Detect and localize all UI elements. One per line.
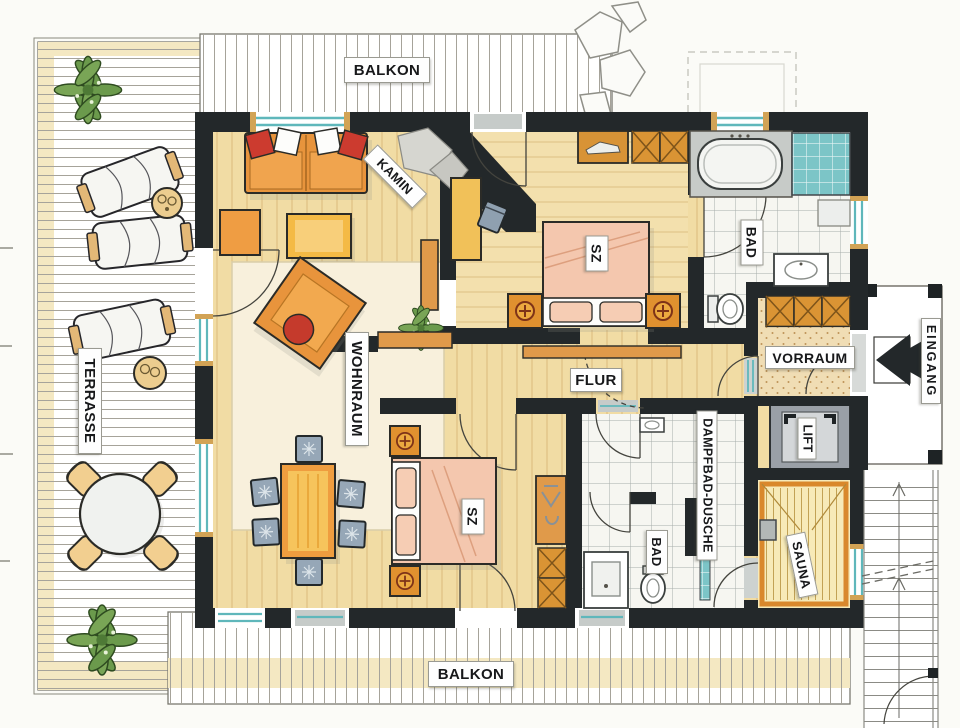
room-label-wohnraum: WOHNRAUM xyxy=(345,332,369,446)
terrace-side-table xyxy=(134,357,166,389)
terrace-area xyxy=(34,38,209,694)
pillow xyxy=(600,302,642,322)
vanity-lower xyxy=(584,552,628,608)
pillow xyxy=(314,128,341,155)
lamp-icon xyxy=(654,302,672,320)
room-label-terrasse: TERRASSE xyxy=(78,348,102,454)
pillow xyxy=(396,468,416,508)
washbasin-upper xyxy=(774,254,828,286)
lamp-icon xyxy=(516,302,534,320)
sauna-heater xyxy=(760,520,776,540)
lamp-icon xyxy=(397,573,413,589)
toilet-upper xyxy=(708,294,743,324)
pillow xyxy=(274,128,301,155)
pillow xyxy=(550,302,592,322)
lounge-chair xyxy=(86,214,194,271)
flur-sideboard xyxy=(523,346,681,358)
shower xyxy=(792,133,850,195)
terrace-door-living xyxy=(195,248,213,314)
small-sink xyxy=(640,418,664,432)
lamp-icon xyxy=(397,433,413,449)
steam-bench xyxy=(700,560,710,600)
round-table xyxy=(80,474,160,554)
door-threshold-vorraum xyxy=(744,358,758,394)
floor-plan: BALKON TERRASSE KAMIN WOHNRAUM SZ BAD VO… xyxy=(0,0,960,728)
bathtub xyxy=(698,139,782,189)
balcony-door-bedroom-upper xyxy=(470,112,526,132)
vorraum-area xyxy=(766,296,850,326)
sideboard xyxy=(378,332,452,348)
room-label-balkon-bottom: BALKON xyxy=(428,661,514,687)
stairs xyxy=(862,470,938,728)
side-table xyxy=(220,210,260,255)
room-label-sz-lower: SZ xyxy=(462,499,485,535)
door-opening-bedroom-upper xyxy=(440,280,456,326)
window-left-2 xyxy=(195,439,213,537)
room-label-lift: LIFT xyxy=(798,418,817,460)
window-bottom-living xyxy=(215,608,265,628)
washstand xyxy=(536,476,566,544)
balcony-door-bedroom-lower xyxy=(455,608,517,628)
room-label-vorraum: VORRAUM xyxy=(765,346,855,369)
sofa xyxy=(245,128,368,193)
window-left-1 xyxy=(195,314,213,366)
terrace-dining-set xyxy=(64,459,182,574)
window-right-1 xyxy=(850,196,868,249)
balcony-threshold-living xyxy=(291,608,349,628)
wardrobe xyxy=(632,131,688,163)
room-label-sz-upper: SZ xyxy=(586,236,609,272)
room-label-bad-upper: BAD xyxy=(741,220,764,266)
pillow xyxy=(396,515,416,555)
window-top-bath xyxy=(711,112,769,132)
wardrobe xyxy=(794,296,822,326)
terrace-side-table xyxy=(152,188,182,218)
room-label-dampfbad-dusche: DAMPFBAD-DUSCHE xyxy=(697,411,718,561)
wardrobe xyxy=(766,296,794,326)
shelf xyxy=(578,131,628,163)
dashed-window-outline xyxy=(688,52,796,118)
room-label-bad-lower: BAD xyxy=(646,530,668,574)
wardrobe xyxy=(822,296,850,326)
coffee-table xyxy=(287,214,355,262)
sideboard xyxy=(421,240,438,310)
room-label-balkon-top: BALKON xyxy=(344,57,430,83)
pillow xyxy=(245,129,274,158)
bath-shelf xyxy=(818,200,850,226)
room-label-flur: FLUR xyxy=(570,368,622,392)
balcony-threshold-flur xyxy=(575,608,629,628)
bed-lower xyxy=(392,458,501,570)
room-label-eingang: EINGANG xyxy=(921,318,941,404)
paper-scan-marks xyxy=(0,248,13,561)
wardrobe xyxy=(538,548,566,608)
